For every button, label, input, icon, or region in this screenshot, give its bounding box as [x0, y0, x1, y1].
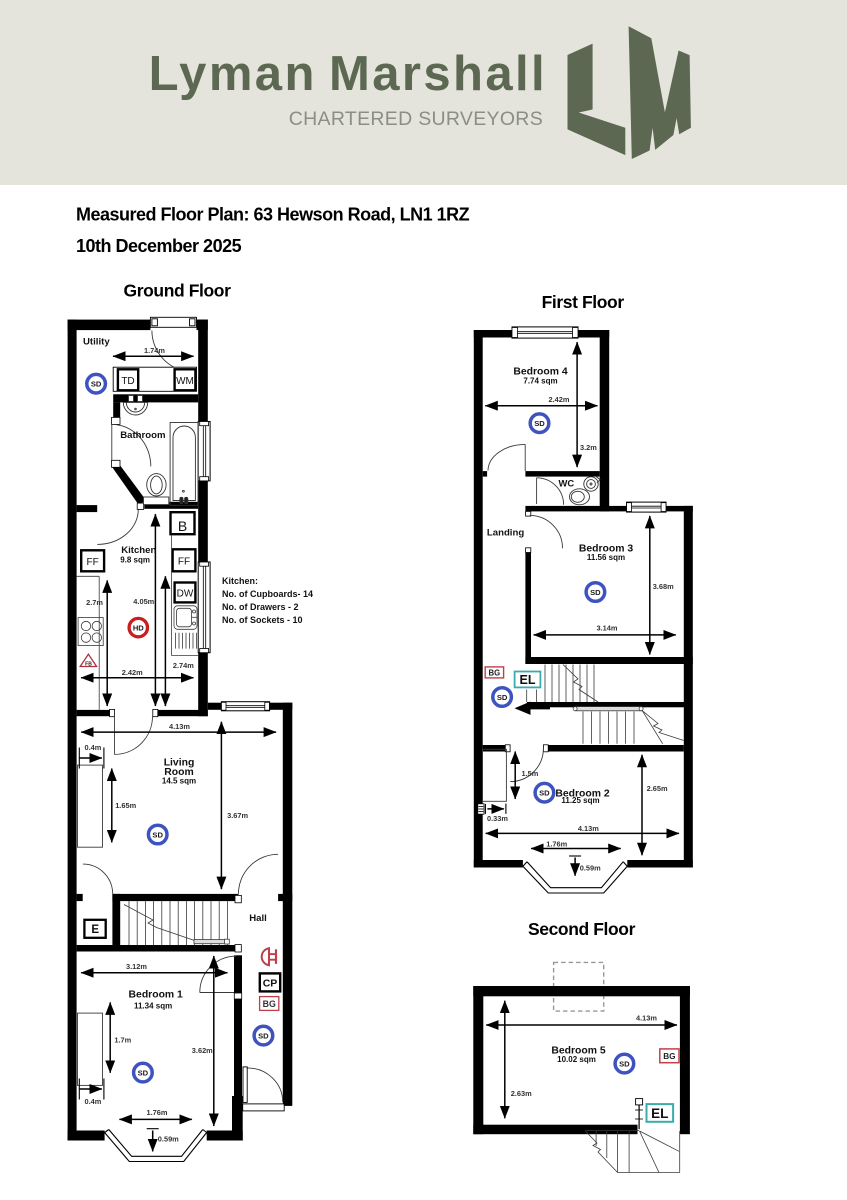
svg-text:BG: BG — [263, 999, 276, 1009]
svg-text:10.02 sqm: 10.02 sqm — [557, 1055, 596, 1064]
svg-text:2.74m: 2.74m — [173, 661, 194, 670]
svg-text:Bedroom 1: Bedroom 1 — [129, 990, 183, 1001]
svg-text:1.76m: 1.76m — [147, 1108, 168, 1117]
svg-text:3.68m: 3.68m — [653, 582, 674, 591]
svg-text:WC: WC — [559, 477, 575, 488]
svg-text:HD: HD — [133, 624, 144, 633]
svg-text:1.5m: 1.5m — [522, 769, 539, 778]
svg-text:3.62m: 3.62m — [192, 1046, 213, 1055]
svg-text:No. of Sockets - 10: No. of Sockets - 10 — [222, 615, 303, 625]
svg-text:14.5 sqm: 14.5 sqm — [162, 777, 196, 786]
svg-text:E: E — [91, 924, 99, 936]
svg-text:11.56 sqm: 11.56 sqm — [587, 553, 625, 562]
svg-text:4.13m: 4.13m — [578, 824, 599, 833]
svg-text:11.25 sqm: 11.25 sqm — [561, 796, 599, 805]
svg-text:Bathroom: Bathroom — [120, 430, 165, 441]
svg-text:2.42m: 2.42m — [549, 395, 570, 404]
svg-text:TD: TD — [121, 376, 134, 387]
svg-text:Landing: Landing — [487, 527, 524, 538]
svg-text:4.13m: 4.13m — [636, 1013, 657, 1022]
svg-text:0.4m: 0.4m — [84, 1097, 101, 1106]
svg-text:9.8 sqm: 9.8 sqm — [120, 555, 150, 564]
svg-text:CP: CP — [263, 978, 278, 990]
svg-text:0.4m: 0.4m — [84, 743, 101, 752]
svg-text:7.74 sqm: 7.74 sqm — [523, 377, 557, 386]
svg-text:FF: FF — [178, 556, 190, 567]
svg-text:2.42m: 2.42m — [122, 668, 143, 677]
svg-text:B: B — [178, 518, 187, 534]
svg-text:3.2m: 3.2m — [580, 443, 597, 452]
svg-text:4.13m: 4.13m — [169, 722, 190, 731]
svg-text:First Floor: First Floor — [542, 292, 625, 312]
svg-text:1.65m: 1.65m — [115, 801, 136, 810]
svg-text:2.63m: 2.63m — [511, 1089, 532, 1098]
svg-text:Measured Floor Plan: 63 Hewson: Measured Floor Plan: 63 Hewson Road, LN1… — [76, 205, 470, 225]
svg-text:Ground Floor: Ground Floor — [124, 281, 232, 301]
svg-text:Kitchen:: Kitchen: — [222, 576, 258, 586]
svg-text:0.33m: 0.33m — [487, 814, 508, 823]
svg-text:EL: EL — [651, 1106, 668, 1121]
svg-text:10th December 2025: 10th December 2025 — [76, 236, 242, 256]
svg-text:BG: BG — [489, 668, 501, 677]
svg-text:Hall: Hall — [249, 913, 267, 924]
svg-text:Kitchen: Kitchen — [121, 545, 156, 556]
svg-text:2.65m: 2.65m — [647, 784, 668, 793]
svg-text:3.14m: 3.14m — [597, 623, 618, 632]
svg-text:BG: BG — [663, 1052, 675, 1061]
svg-text:2.7m: 2.7m — [86, 598, 103, 607]
svg-text:0.59m: 0.59m — [158, 1135, 179, 1144]
svg-text:DW: DW — [177, 589, 194, 600]
svg-text:WM: WM — [176, 376, 194, 387]
svg-text:No. of Drawers - 2: No. of Drawers - 2 — [222, 602, 299, 612]
svg-text:0.59m: 0.59m — [580, 863, 601, 872]
svg-text:FB: FB — [85, 661, 92, 667]
svg-text:1.74m: 1.74m — [144, 346, 165, 355]
svg-text:1.76m: 1.76m — [546, 839, 567, 848]
svg-text:11.34 sqm: 11.34 sqm — [134, 1002, 172, 1011]
svg-text:EL: EL — [520, 673, 536, 687]
svg-text:1.7m: 1.7m — [114, 1036, 131, 1045]
svg-text:No. of Cupboards- 14: No. of Cupboards- 14 — [222, 589, 313, 599]
svg-text:Second Floor: Second Floor — [528, 919, 636, 939]
svg-text:3.67m: 3.67m — [227, 811, 248, 820]
svg-text:Utility: Utility — [83, 337, 110, 348]
svg-text:3.12m: 3.12m — [126, 962, 147, 971]
svg-text:4.05m: 4.05m — [133, 597, 154, 606]
svg-text:FF: FF — [86, 557, 98, 568]
